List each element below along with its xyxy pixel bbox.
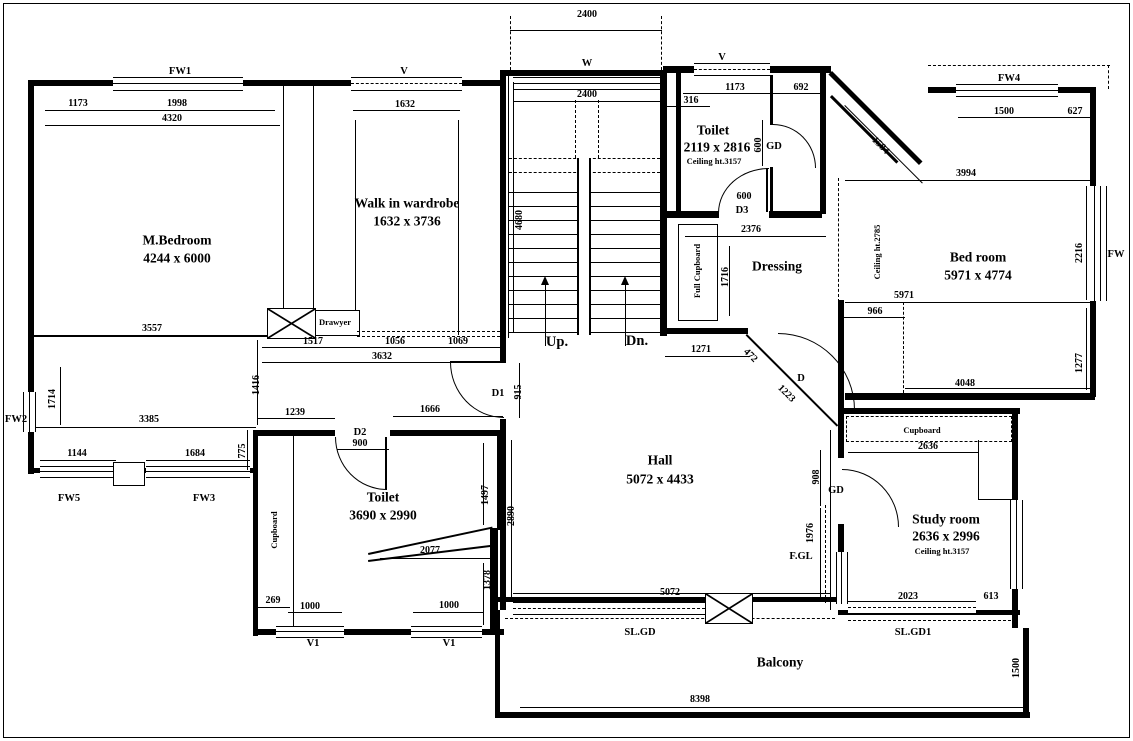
drawing-stroke (258, 607, 290, 608)
drawing-stroke (830, 430, 831, 610)
label-toilet_top-dim-600: 600 (737, 192, 752, 202)
drawing-stroke (495, 712, 1030, 718)
label-hall-dim-2890: 2890 (507, 506, 517, 526)
drawing-stroke (1108, 65, 1109, 89)
label-balcony-slgd: SL.GD (624, 628, 655, 639)
label-wardrobe-dim-1069: 1069 (448, 337, 468, 347)
drawing-stroke (1086, 308, 1087, 390)
label-wardrobe-v: V (400, 67, 408, 78)
label-m_bedroom-dim-1173: 1173 (68, 99, 87, 109)
label-toilet_bottom-cupboard: Cupboard (270, 511, 279, 548)
drawing-stroke (685, 236, 826, 237)
drawing-stroke (337, 449, 389, 450)
label-hall-d1: D1 (492, 389, 505, 400)
drawing-stroke (1012, 408, 1018, 501)
drawing-stroke (838, 524, 844, 554)
label-dressing-dim-2376: 2376 (741, 225, 761, 235)
drawing-stroke (500, 334, 506, 363)
label-toilet_top-dim-1173: 1173 (725, 83, 744, 93)
label-study-fgl: F.GL (789, 552, 812, 563)
drawing-stroke (45, 125, 280, 126)
drawing-stroke (283, 86, 284, 308)
label-wardrobe-size: 1632 x 3736 (373, 214, 441, 228)
label-toilet_top-dim-600-v: 600 (754, 138, 764, 153)
ventilator-v-toilet (694, 63, 770, 76)
drawing-stroke (1090, 92, 1096, 186)
label-m_bedroom-name: M.Bedroom (142, 233, 211, 247)
drawing-stroke (661, 16, 662, 70)
label-bed_room-dim-1500: 1500 (994, 107, 1014, 117)
drawing-stroke (28, 80, 116, 86)
label-m_bedroom-dim-1714: 1714 (48, 389, 58, 409)
drawing-stroke (380, 558, 492, 559)
window-fw4 (956, 84, 1058, 97)
label-toilet_bottom-dim-2077: 2077 (420, 546, 440, 556)
drawing-stroke (242, 80, 353, 86)
drawing-stroke (820, 73, 826, 214)
label-m_bedroom-dim-3385: 3385 (139, 415, 159, 425)
drawing-stroke (505, 618, 835, 619)
window-fw2 (23, 392, 36, 432)
label-toilet_bottom-v1a: V1 (307, 639, 320, 650)
window-fw1 (113, 77, 243, 91)
label-bed_room-name: Bed room (950, 250, 1006, 264)
label-m_bedroom-fw3: FW3 (193, 494, 215, 505)
label-m_bedroom-dim-1998: 1998 (167, 99, 187, 109)
drawing-stroke (1012, 588, 1018, 628)
drawing-stroke (903, 302, 904, 393)
drawing-stroke (770, 75, 773, 125)
label-wardrobe-dim-1056: 1056 (385, 337, 405, 347)
up-arrowhead (541, 276, 549, 285)
drawing-stroke (508, 76, 509, 338)
label-bed_room-dim-4048: 4048 (955, 379, 975, 389)
drawing-stroke (355, 120, 356, 335)
label-bed_room-fw: FW (1108, 250, 1125, 261)
drawing-stroke (978, 499, 1013, 500)
drawing-stroke (663, 328, 748, 334)
drawing-stroke (353, 110, 460, 111)
label-m_bedroom-fw1: FW1 (169, 67, 191, 78)
label-m_bedroom-dim-1416: 1416 (252, 375, 262, 395)
drawing-stroke (60, 367, 61, 425)
label-bed_room-fw4: FW4 (998, 74, 1020, 85)
drawing-stroke (660, 70, 667, 336)
drawing-stroke (663, 211, 719, 218)
label-bed_room-dim-3994: 3994 (956, 169, 976, 179)
drawing-stroke (825, 505, 826, 603)
label-m_bedroom-fw5: FW5 (58, 494, 80, 505)
label-m_bedroom-fw2: FW2 (5, 415, 27, 426)
drawing-stroke (1090, 301, 1096, 397)
drawing-stroke (1026, 632, 1027, 708)
drawing-stroke (905, 388, 1090, 389)
drawing-stroke (262, 362, 505, 363)
drawing-stroke (357, 331, 505, 332)
label-m_bedroom-dim-1144: 1144 (67, 449, 86, 459)
label-wardrobe-dim-1632: 1632 (395, 100, 415, 110)
label-dressing-dim-1716: 1716 (721, 267, 731, 287)
window-study-right (1010, 500, 1023, 589)
drawing-stroke (288, 612, 342, 613)
drawing-stroke (978, 440, 979, 500)
column-x-box-hall (705, 593, 753, 624)
label-m_bedroom-dim-3557: 3557 (142, 324, 162, 334)
drawing-stroke (848, 620, 1016, 621)
label-hall-d: D (797, 374, 805, 385)
label-bed_room-dim-1277: 1277 (1075, 353, 1085, 373)
drawing-stroke (665, 106, 710, 107)
drawing-stroke (676, 73, 681, 214)
label-toilet_bottom-dim-1000-b: 1000 (439, 601, 459, 611)
drawing-stroke (40, 460, 116, 461)
label-toilet_bottom-name: Toilet (367, 490, 400, 504)
drawing-stroke (845, 393, 1095, 400)
label-bed_room-ceiling: Ceiling ht.2785 (873, 225, 882, 280)
label-wardrobe-dim-3632: 3632 (372, 352, 392, 362)
label-dressing-full-cupboard: Full Cupboard (693, 244, 702, 298)
drawing-stroke (253, 430, 335, 436)
label-toilet_bottom-dim-1000-a: 1000 (300, 602, 320, 612)
drawing-stroke (500, 70, 506, 338)
label-m_bedroom-dim-4320: 4320 (162, 114, 182, 124)
label-bed_room-dim-627: 627 (1068, 107, 1083, 117)
label-hall-name: Hall (648, 453, 673, 467)
drawing-stroke (268, 309, 315, 338)
drawing-stroke (506, 70, 664, 76)
label-toilet_bottom-v1b: V1 (443, 639, 456, 650)
label-toilet_bottom-d2: D2 (354, 428, 367, 439)
column-x-box-wardrobe (267, 308, 316, 339)
label-m_bedroom-dim-775: 775 (238, 444, 248, 459)
drawing-stroke (845, 302, 1090, 303)
label-hall-dim-5072: 5072 (660, 588, 680, 598)
label-m_bedroom-size: 4244 x 6000 (143, 251, 211, 265)
label-stairs-dim-2400-outer: 2400 (577, 10, 597, 20)
label-bed_room-size: 5971 x 4774 (944, 268, 1012, 282)
drawing-stroke (258, 418, 335, 419)
label-toilet_bottom-dim-1497: 1497 (481, 485, 491, 505)
label-bed_room-dim-2216: 2216 (1075, 243, 1085, 263)
label-study-dim-908: 908 (812, 470, 822, 485)
drawing-stroke (838, 178, 839, 302)
drawing-stroke (45, 110, 275, 111)
drawing-stroke (928, 87, 958, 93)
drawing-stroke (838, 317, 905, 318)
label-wardrobe-drawyer: Drawyer (319, 318, 351, 327)
drawing-stroke (497, 430, 503, 530)
label-stairs-w: W (582, 59, 593, 70)
drawing-stroke (393, 416, 503, 417)
drawing-stroke (958, 117, 1094, 118)
label-toilet_top-name: Toilet (697, 123, 730, 137)
drawing-stroke (769, 211, 822, 218)
label-toilet_top-dim-692: 692 (794, 83, 809, 93)
label-study-slgd1: SL.GD1 (895, 628, 931, 639)
ventilator-v-wardrobe (351, 77, 462, 91)
label-stairs-dim-4680: 4680 (515, 210, 525, 230)
label-toilet_bottom-dim-1239: 1239 (285, 408, 305, 418)
ventilator-v1-a (276, 626, 344, 638)
label-m_bedroom-dim-1684: 1684 (185, 449, 205, 459)
drawing-stroke (483, 443, 484, 525)
label-toilet_top-dim-316: 316 (684, 96, 699, 106)
label-study-name: Study room (912, 512, 980, 526)
drawing-stroke (513, 82, 514, 332)
drawing-stroke (458, 120, 459, 335)
label-study-gd: GD (828, 486, 844, 497)
drawing-stroke (838, 408, 1020, 414)
drawing-stroke (34, 427, 256, 428)
drawing-stroke (510, 16, 511, 70)
label-bed_room-dim-5971: 5971 (894, 291, 914, 301)
drawing-stroke (845, 180, 1090, 181)
drawing-stroke (838, 408, 844, 458)
window-study-left-fgl (836, 552, 848, 604)
label-hall-dim-1271: 1271 (691, 345, 711, 355)
label-toilet_top-ceiling: Ceiling ht.3157 (687, 157, 742, 166)
label-toilet_bottom-dim-900: 900 (353, 439, 368, 449)
drawing-stroke (1086, 186, 1087, 300)
wall-pillar (113, 462, 145, 486)
drawing-stroke (520, 707, 1026, 708)
label-hall-size: 5072 x 4433 (626, 472, 694, 486)
label-toilet_bottom-dim-1378: 1378 (483, 570, 493, 590)
label-study-dim-1976: 1976 (806, 523, 816, 543)
label-stairs-dim-2400-inner: 2400 (577, 90, 597, 100)
window-fw (1094, 186, 1107, 301)
drawing-stroke (510, 30, 662, 31)
label-toilet_top-size: 2119 x 2816 (684, 140, 751, 154)
label-study-cupboard: Cupboard (903, 426, 940, 435)
drawing-stroke (820, 508, 821, 598)
label-toilet_bottom-dim-1666: 1666 (420, 405, 440, 415)
label-balcony-dim-8398: 8398 (690, 695, 710, 705)
drawing-stroke (262, 347, 505, 348)
drawing-stroke (683, 93, 822, 94)
label-toilet_bottom-size: 3690 x 2990 (349, 508, 417, 522)
label-dressing-name: Dressing (752, 259, 802, 273)
label-toilet_top-d3: D3 (736, 206, 749, 217)
sliding-door-slgd1 (848, 601, 976, 614)
drawing-stroke (514, 101, 660, 102)
drawing-stroke (770, 167, 773, 213)
label-study-dim-613: 613 (984, 592, 999, 602)
label-wardrobe-name: Walk in wardrobe (355, 196, 460, 210)
drawing-stroke (313, 86, 314, 310)
stair-landing-dashed (575, 100, 599, 158)
label-toilet_bottom-dim-269: 269 (266, 596, 281, 606)
drawing-stroke (146, 460, 250, 461)
window-fw5 (40, 466, 115, 478)
label-balcony-name: Balcony (757, 655, 804, 669)
label-study-size: 2636 x 2996 (912, 529, 980, 543)
drawing-stroke (293, 436, 294, 629)
drawing-stroke (28, 80, 34, 394)
window-fw3 (146, 466, 250, 478)
ventilator-v1-b (411, 626, 482, 638)
label-bed_room-dim-966: 966 (868, 307, 883, 317)
drawing-stroke (928, 65, 1110, 66)
label-study-dim-2023: 2023 (898, 592, 918, 602)
drawing-stroke (390, 430, 506, 436)
drawing-stroke (665, 356, 750, 357)
drawing-stroke (848, 452, 978, 453)
label-stairs-up: Up. (546, 335, 568, 350)
drawing-stroke (706, 594, 752, 623)
label-study-ceiling: Ceiling ht.3157 (915, 547, 970, 556)
drawing-stroke (253, 430, 258, 636)
label-stairs-dn: Dn. (626, 334, 648, 349)
dn-arrowhead (621, 276, 629, 285)
sliding-door-slgd (513, 602, 705, 615)
label-toilet_top-gd: GD (766, 142, 782, 153)
drawing-stroke (495, 610, 500, 717)
label-wardrobe-dim-1517: 1517 (303, 337, 323, 347)
label-toilet_top-v: V (718, 53, 726, 64)
label-study-dim-2636: 2636 (918, 442, 938, 452)
drawing-stroke (413, 612, 483, 613)
label-balcony-dim-1500: 1500 (1012, 658, 1022, 678)
floor-plan-sheet: FW1117319984320M.Bedroom4244 x 60003557F… (0, 0, 1133, 741)
drawing-stroke (34, 335, 267, 337)
stair-divider (577, 158, 591, 335)
drawing-stroke (357, 336, 505, 337)
label-hall-dim-915: 915 (514, 385, 524, 400)
